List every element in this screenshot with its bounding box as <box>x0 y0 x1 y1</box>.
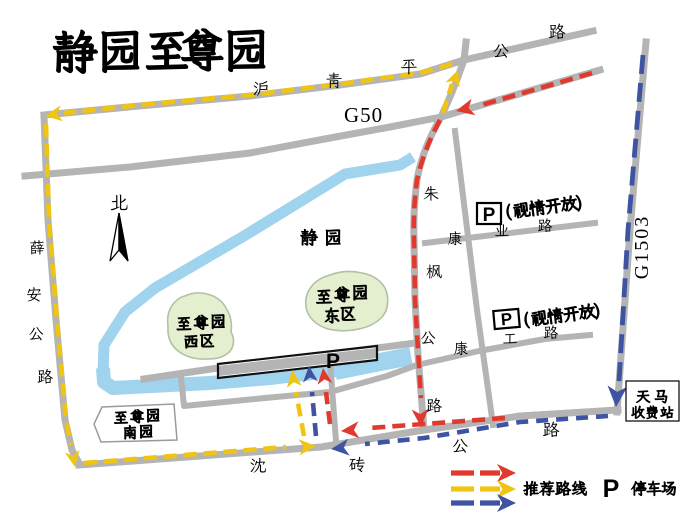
svg-text:P: P <box>326 350 340 373</box>
svg-text:P: P <box>483 205 496 226</box>
svg-text:G1503: G1503 <box>631 215 653 279</box>
svg-text:P: P <box>500 309 513 329</box>
svg-text:P: P <box>603 475 620 503</box>
svg-text:G50: G50 <box>344 103 383 127</box>
